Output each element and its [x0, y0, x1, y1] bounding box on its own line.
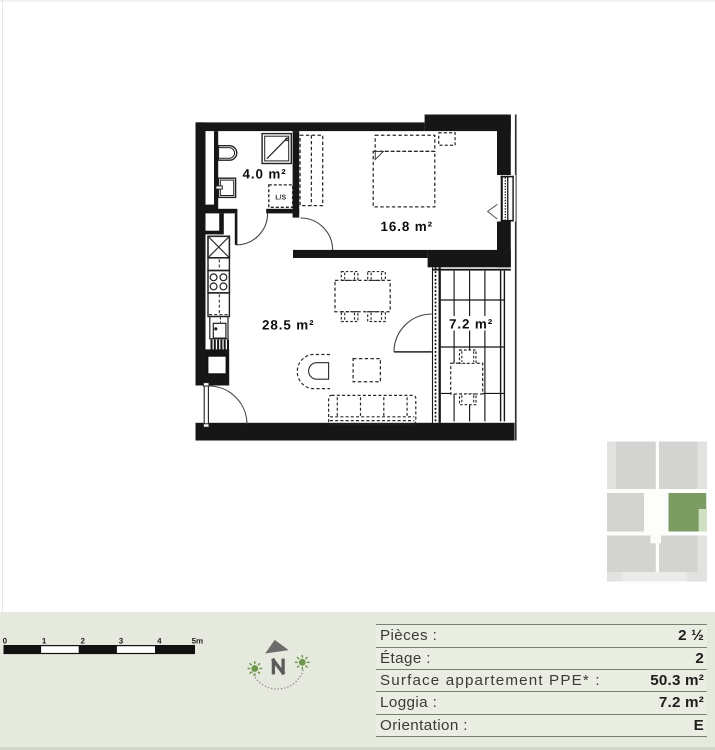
svg-text:2: 2	[80, 637, 85, 646]
svg-text:1: 1	[42, 637, 47, 646]
svg-text:L/S: L/S	[275, 193, 286, 201]
svg-text:0: 0	[3, 637, 8, 646]
svg-text:3: 3	[119, 637, 124, 646]
svg-text:4.0 m²: 4.0 m²	[243, 166, 287, 181]
svg-text:7.2 m²: 7.2 m²	[449, 316, 493, 331]
svg-text:4: 4	[157, 637, 162, 646]
svg-text:5m: 5m	[192, 637, 204, 646]
svg-text:28.5 m²: 28.5 m²	[262, 318, 314, 333]
svg-text:16.8 m²: 16.8 m²	[381, 219, 433, 234]
